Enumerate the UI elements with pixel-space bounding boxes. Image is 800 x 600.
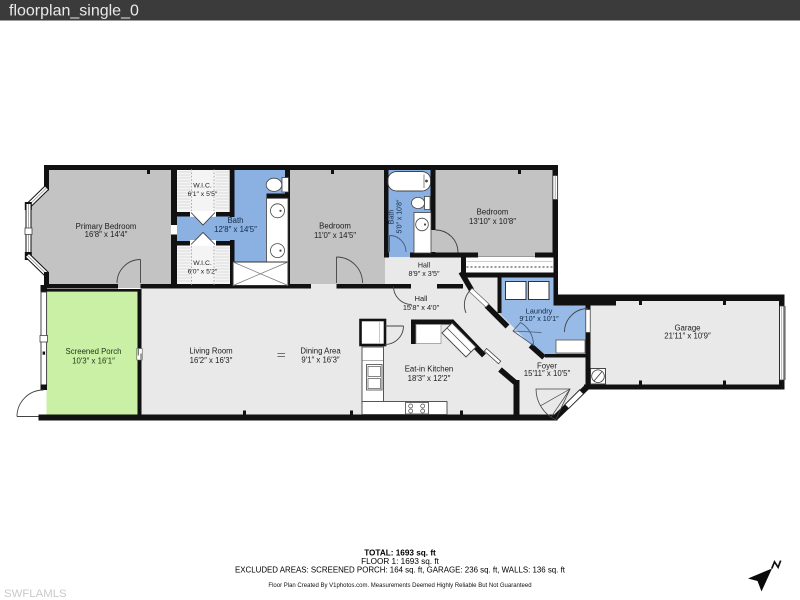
svg-text:16′8″ x 14′4″: 16′8″ x 14′4″ [85,230,128,239]
svg-text:15′11″ x 10′5″: 15′11″ x 10′5″ [524,369,571,378]
svg-text:Eat-in Kitchen: Eat-in Kitchen [405,365,454,374]
svg-text:13′10″ x 10′8″: 13′10″ x 10′8″ [469,217,516,226]
svg-text:Bedroom: Bedroom [319,222,351,231]
svg-text:Living Room: Living Room [189,347,232,356]
svg-text:Screened Porch: Screened Porch [66,347,122,356]
svg-text:W.I.C.: W.I.C. [193,183,212,190]
svg-text:16′2″ x 16′3″: 16′2″ x 16′3″ [190,356,233,365]
svg-text:Bath: Bath [227,216,243,225]
svg-text:18′3″ x 12′2″: 18′3″ x 12′2″ [408,374,451,383]
svg-text:6′0″ x 5′2″: 6′0″ x 5′2″ [188,269,218,276]
svg-text:9′10″ x 10′1″: 9′10″ x 10′1″ [519,314,559,323]
svg-text:8′9″ x 3′5″: 8′9″ x 3′5″ [409,270,440,278]
svg-text:floorplan_single_0: floorplan_single_0 [9,3,139,20]
svg-text:10′3″ x 16′1″: 10′3″ x 16′1″ [72,356,115,365]
svg-text:12′8″ x 14′5″: 12′8″ x 14′5″ [214,225,257,234]
svg-text:Bath: Bath [387,210,396,225]
svg-text:5′0″ x 10′8″: 5′0″ x 10′8″ [397,199,404,233]
svg-text:Hall: Hall [415,294,428,303]
svg-text:21′11″ x 10′9″: 21′11″ x 10′9″ [664,332,711,341]
svg-text:9′1″ x 16′3″: 9′1″ x 16′3″ [301,356,340,365]
svg-text:15′8″ x 4′0″: 15′8″ x 4′0″ [403,303,440,312]
svg-text:EXCLUDED AREAS: SCREENED PORCH: EXCLUDED AREAS: SCREENED PORCH: 164 sq. … [235,566,566,575]
svg-text:6′1″ x 5′5″: 6′1″ x 5′5″ [188,191,218,198]
svg-text:W.I.C.: W.I.C. [193,260,212,267]
svg-text:Floor Plan Created By V1photos: Floor Plan Created By V1photos.com. Meas… [268,583,531,589]
svg-text:Hall: Hall [418,262,431,270]
svg-text:Bedroom: Bedroom [477,208,509,217]
svg-text:Dining Area: Dining Area [300,347,341,356]
svg-text:SWFLAMLS: SWFLAMLS [4,588,67,600]
svg-text:11′0″ x 14′5″: 11′0″ x 14′5″ [314,231,356,240]
